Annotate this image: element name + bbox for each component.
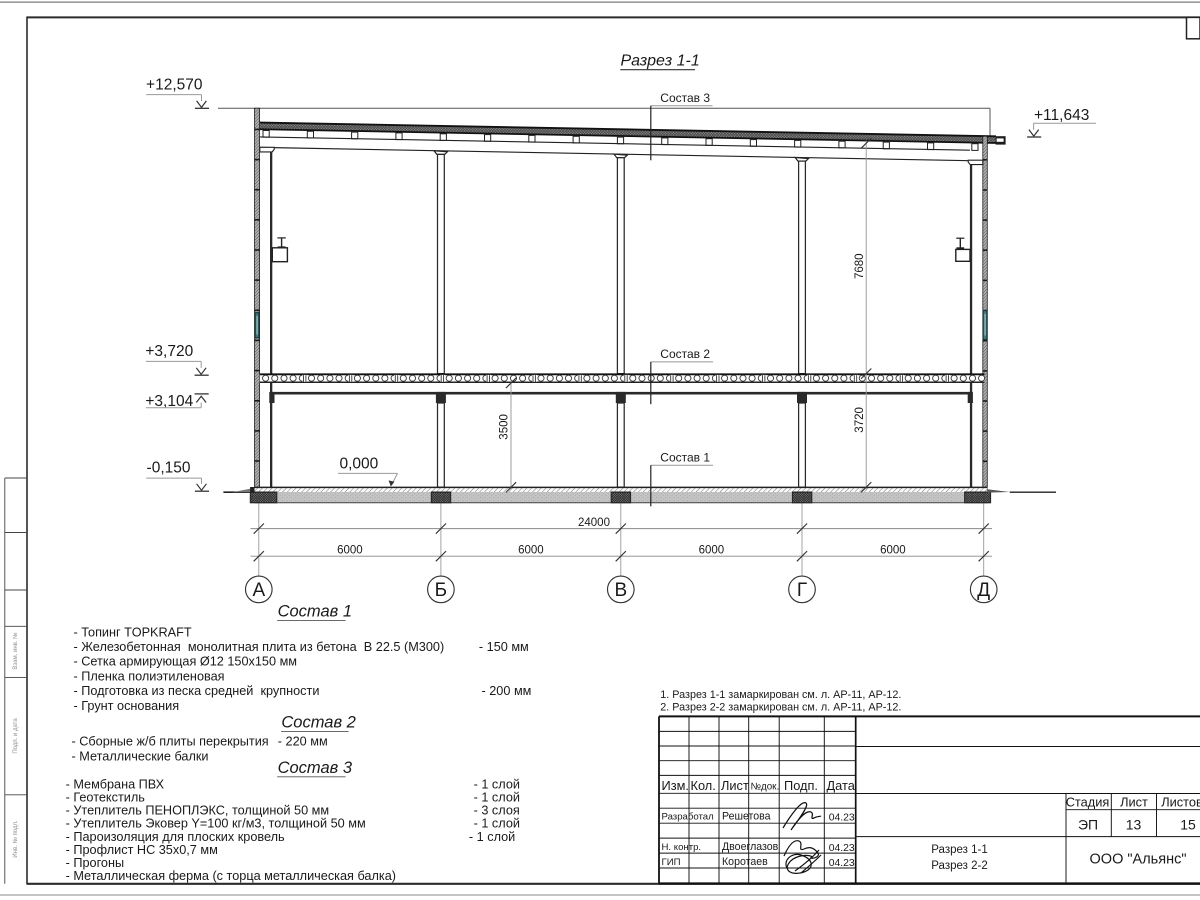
svg-text:- 1 слой: - 1 слой: [474, 777, 520, 791]
svg-text:-0,150: -0,150: [147, 459, 191, 476]
svg-text:- Прогоны: - Прогоны: [66, 856, 125, 870]
svg-text:- Металлическая ферма (с торца: - Металлическая ферма (с торца металличе…: [66, 869, 396, 883]
svg-text:- Грунт основания: - Грунт основания: [74, 699, 180, 713]
svg-text:А: А: [252, 580, 265, 601]
svg-text:Подп. и дата: Подп. и дата: [13, 718, 19, 754]
svg-text:Б: Б: [435, 580, 447, 601]
svg-text:Двоеглазов: Двоеглазов: [722, 841, 779, 853]
svg-text:Разработал: Разработал: [662, 812, 714, 823]
svg-text:+3,720: +3,720: [145, 343, 193, 360]
svg-text:- Профлист НС 35х0,7 мм: - Профлист НС 35х0,7 мм: [66, 843, 218, 857]
svg-text:1. Разрез 1-1 замаркирован см.: 1. Разрез 1-1 замаркирован см. л. АР-11,…: [660, 689, 901, 701]
svg-text:- Металлические балки: - Металлические балки: [72, 749, 209, 763]
svg-text:- 3 слоя: - 3 слоя: [474, 804, 520, 818]
svg-text:+11,643: +11,643: [1034, 107, 1089, 124]
svg-text:ЭП: ЭП: [1078, 817, 1098, 833]
svg-text:- Утеплитель ПЕНОПЛЭКС, толщин: - Утеплитель ПЕНОПЛЭКС, толщиной 50 мм: [66, 804, 330, 818]
svg-text:Разрез 2-2: Разрез 2-2: [931, 860, 987, 872]
svg-text:- Пароизоляция для плоских кро: - Пароизоляция для плоских кровель: [66, 830, 285, 844]
svg-text:Подп.: Подп.: [784, 778, 818, 793]
svg-text:- Сборные ж/б плиты перекрытия: - Сборные ж/б плиты перекрытия: [72, 735, 269, 749]
svg-text:6000: 6000: [337, 545, 363, 557]
svg-text:Инв. № подл.: Инв. № подл.: [12, 820, 19, 858]
svg-text:Д: Д: [977, 580, 990, 601]
svg-text:04.23: 04.23: [829, 858, 855, 869]
svg-text:- 220 мм: - 220 мм: [278, 735, 328, 749]
svg-text:№док.: №док.: [751, 781, 780, 792]
svg-text:Решетова: Решетова: [722, 811, 771, 823]
svg-text:0,000: 0,000: [340, 456, 379, 473]
svg-text:7680: 7680: [854, 253, 866, 279]
svg-text:Изм.: Изм.: [662, 778, 689, 793]
svg-text:- 1 слой: - 1 слой: [474, 791, 520, 805]
svg-text:- Утеплитель Эковер Y=100 кг/м: - Утеплитель Эковер Y=100 кг/м3, толщино…: [66, 817, 366, 831]
svg-text:Стадия: Стадия: [1066, 794, 1110, 809]
svg-text:- Подготовка из песка средней: - Подготовка из песка средней крупности: [74, 684, 320, 698]
svg-text:Состав 1: Состав 1: [660, 451, 710, 465]
svg-text:- 1 слой: - 1 слой: [474, 817, 520, 831]
svg-text:- Геотекстиль: - Геотекстиль: [66, 791, 146, 805]
svg-text:+12,570: +12,570: [146, 77, 203, 94]
svg-text:04.23: 04.23: [829, 813, 855, 824]
svg-text:- 1 слой: - 1 слой: [469, 830, 515, 844]
svg-text:В: В: [614, 580, 627, 601]
svg-text:04.23: 04.23: [829, 843, 855, 854]
svg-text:Состав 2: Состав 2: [660, 347, 710, 361]
svg-text:6000: 6000: [518, 545, 544, 557]
svg-text:24000: 24000: [578, 517, 610, 529]
svg-text:Коротаев: Коротаев: [722, 856, 768, 868]
svg-text:- Пленка полиэтиленовая: - Пленка полиэтиленовая: [74, 669, 225, 683]
svg-text:- Сетка армирующая Ø12 150х150: - Сетка армирующая Ø12 150х150 мм: [74, 655, 298, 669]
svg-text:15: 15: [1180, 817, 1196, 833]
svg-text:13: 13: [1126, 817, 1142, 833]
svg-text:- Топинг TOPKRAFT: - Топинг TOPKRAFT: [74, 625, 192, 639]
svg-text:Разрез 1-1: Разрез 1-1: [621, 52, 700, 69]
svg-text:Состав 1: Состав 1: [278, 603, 352, 621]
svg-text:- Мембрана ПВХ: - Мембрана ПВХ: [66, 777, 165, 791]
svg-text:Состав 3: Состав 3: [278, 759, 353, 777]
svg-text:6000: 6000: [880, 545, 906, 557]
svg-text:Н. контр.: Н. контр.: [662, 842, 702, 853]
svg-text:- Железобетонная монолитная п: - Железобетонная монолитная плита из бет…: [74, 640, 445, 654]
svg-text:- 150 мм: - 150 мм: [479, 640, 529, 654]
svg-text:Кол.: Кол.: [691, 778, 716, 793]
svg-text:3720: 3720: [854, 407, 866, 433]
svg-text:Состав 2: Состав 2: [281, 714, 355, 732]
svg-text:2. Разрез 2-2 замаркирован см.: 2. Разрез 2-2 замаркирован см. л. АР-11,…: [660, 701, 901, 713]
svg-text:Разрез 1-1: Разрез 1-1: [931, 844, 987, 856]
svg-text:Лист: Лист: [1120, 794, 1148, 809]
svg-text:ГИП: ГИП: [662, 857, 681, 868]
svg-text:3500: 3500: [499, 414, 511, 440]
svg-text:ООО "Альянс": ООО "Альянс": [1090, 852, 1187, 868]
svg-text:Лист: Лист: [721, 778, 749, 793]
svg-text:Дата: Дата: [827, 778, 856, 793]
svg-text:Г: Г: [797, 580, 807, 601]
svg-text:Взам. инв. №: Взам. инв. №: [12, 632, 19, 669]
svg-text:Листов: Листов: [1161, 794, 1200, 809]
svg-text:- 200 мм: - 200 мм: [482, 684, 532, 698]
svg-text:Состав 3: Состав 3: [660, 91, 710, 105]
svg-text:6000: 6000: [699, 545, 725, 557]
